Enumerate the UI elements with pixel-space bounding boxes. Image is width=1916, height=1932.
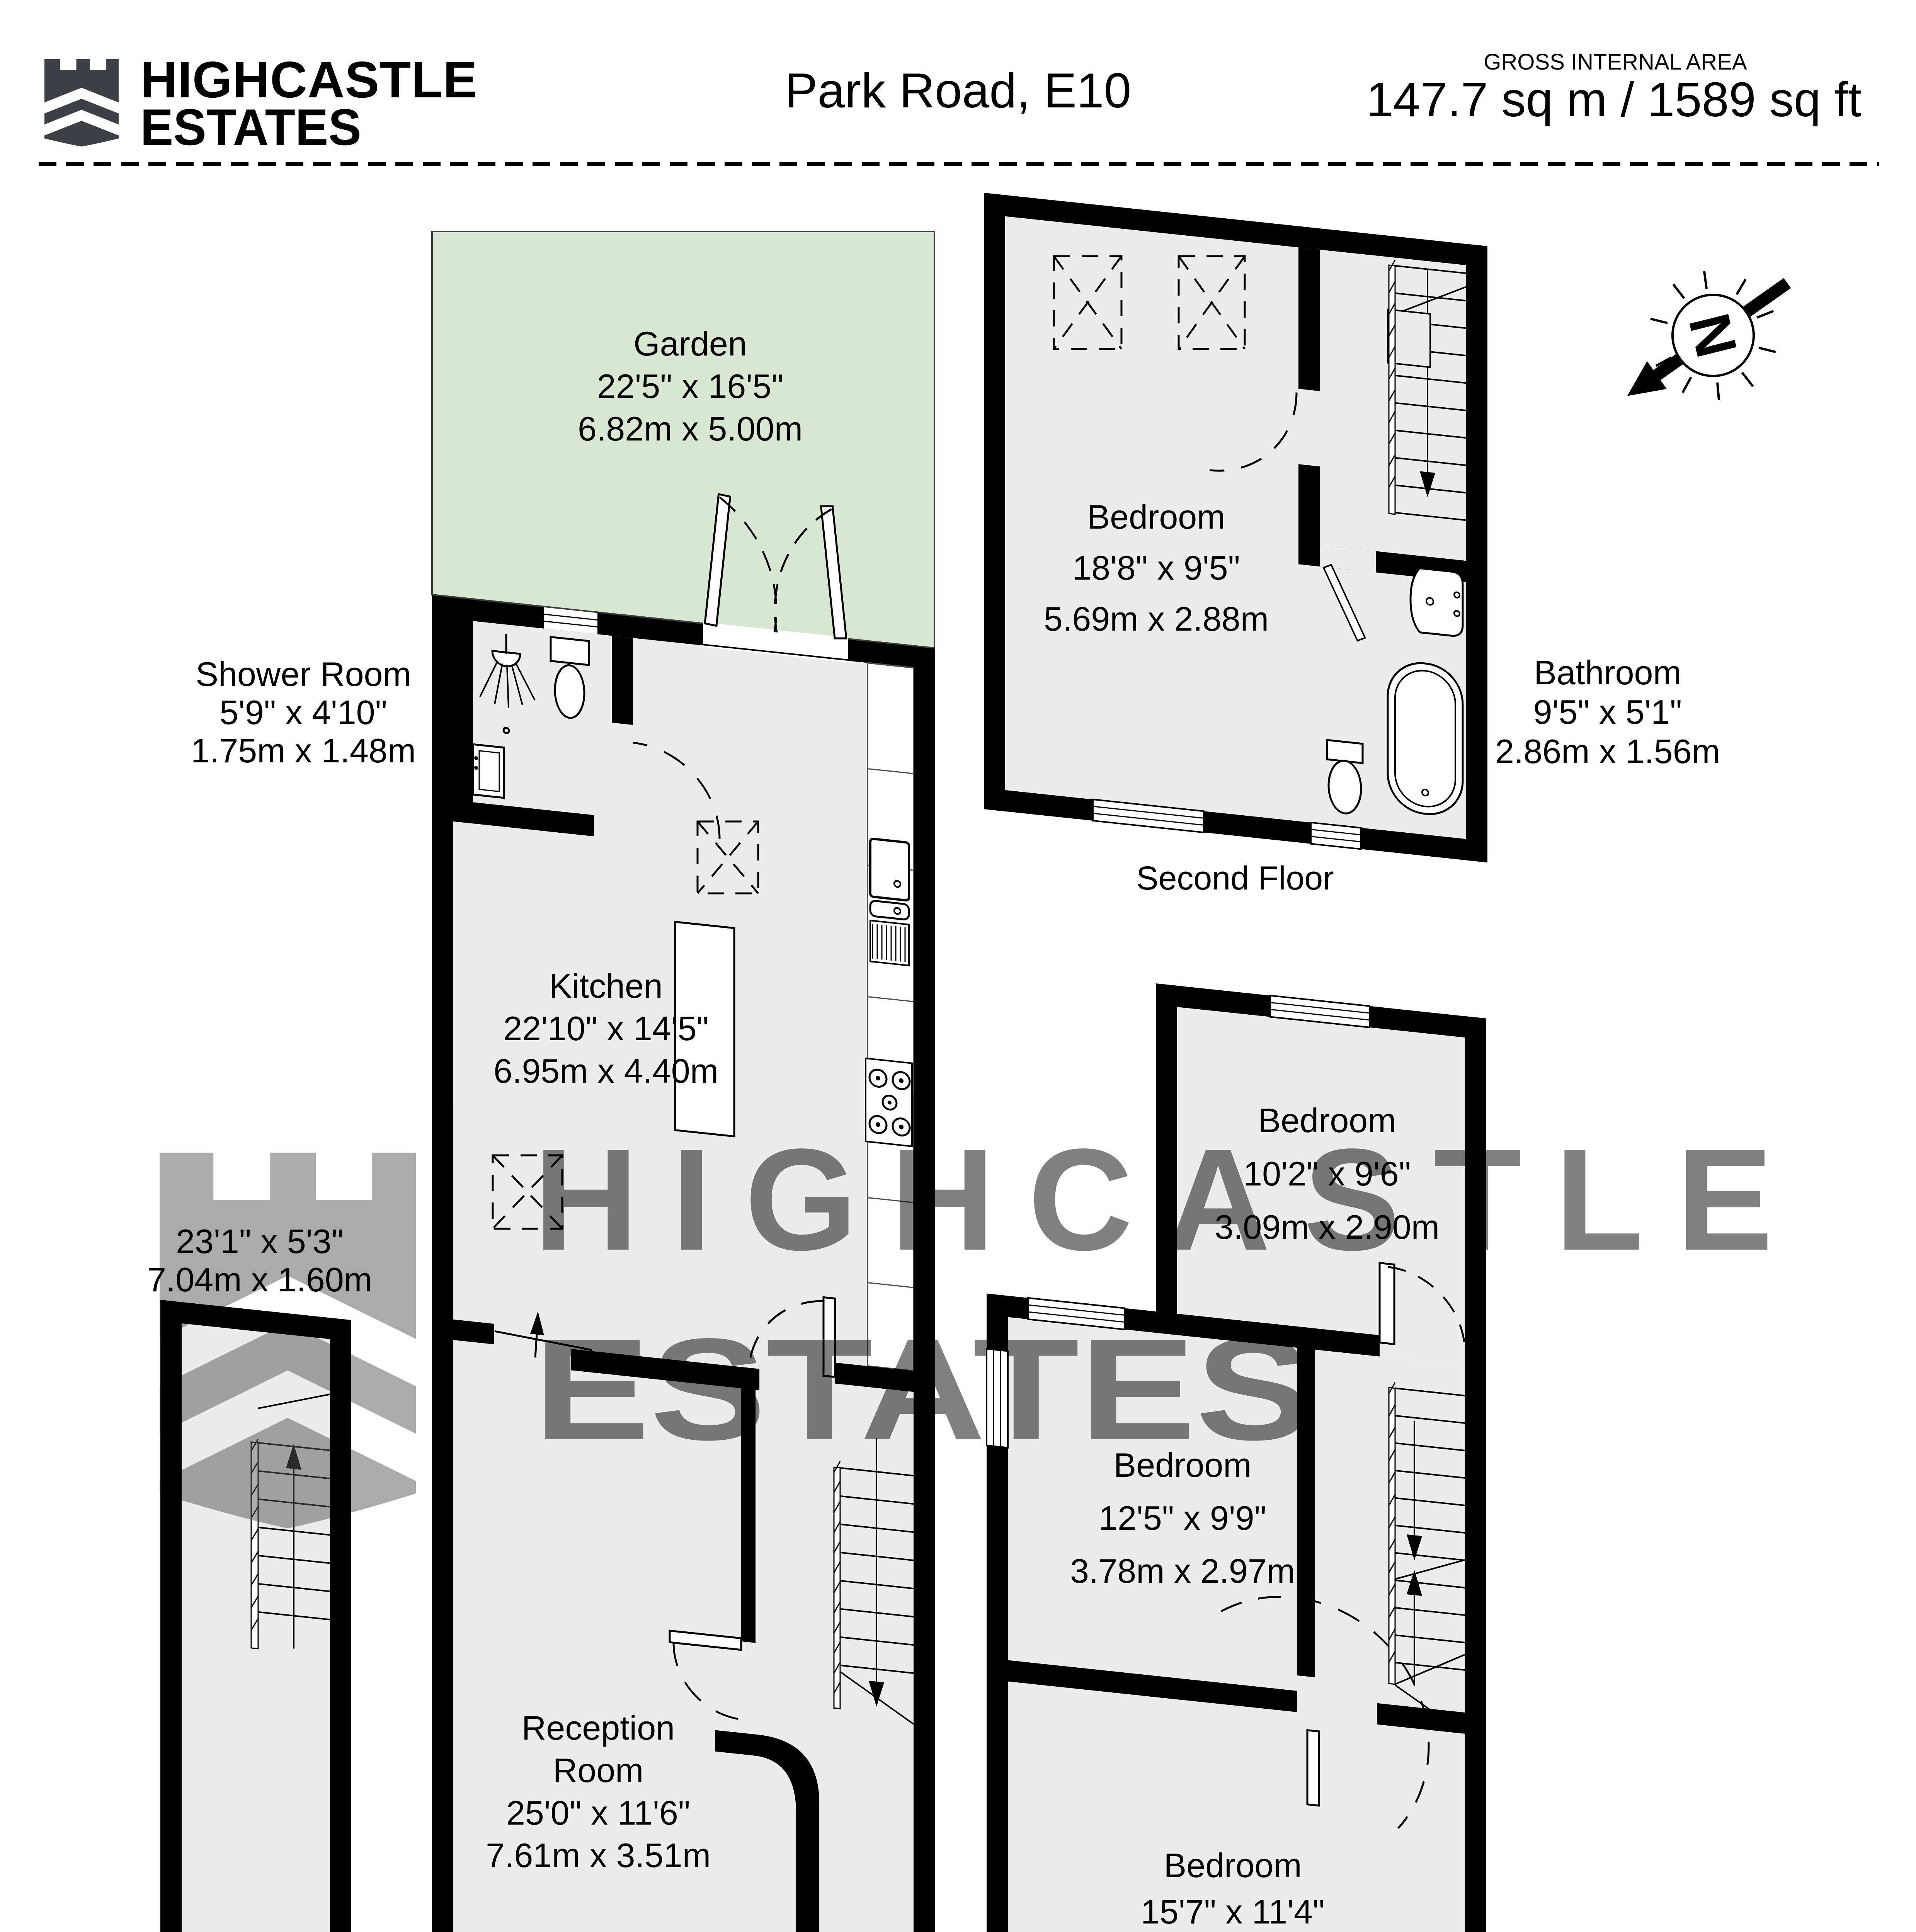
svg-text:Bedroom: Bedroom [1164, 1846, 1302, 1884]
svg-text:5.69m x 2.88m: 5.69m x 2.88m [1044, 600, 1269, 638]
svg-text:6.82m x 5.00m: 6.82m x 5.00m [578, 410, 803, 448]
svg-text:18'8" x 9'5": 18'8" x 9'5" [1072, 549, 1240, 587]
svg-text:12'5" x 9'9": 12'5" x 9'9" [1099, 1499, 1266, 1537]
svg-text:1.75m x 1.48m: 1.75m x 1.48m [191, 731, 416, 770]
svg-text:Bathroom: Bathroom [1534, 653, 1681, 692]
svg-text:23'1" x 5'3": 23'1" x 5'3" [176, 1222, 344, 1260]
svg-text:ESTATES: ESTATES [140, 99, 361, 156]
svg-text:Garden: Garden [633, 325, 747, 363]
svg-text:147.7 sq m / 1589 sq ft: 147.7 sq m / 1589 sq ft [1366, 72, 1862, 127]
svg-text:3.78m x 2.97m: 3.78m x 2.97m [1070, 1552, 1295, 1590]
svg-text:Room: Room [553, 1751, 644, 1789]
svg-text:3.09m x 2.90m: 3.09m x 2.90m [1215, 1208, 1440, 1246]
svg-text:5'9" x 4'10": 5'9" x 4'10" [220, 693, 387, 731]
svg-text:10'2" x 9'6": 10'2" x 9'6" [1243, 1155, 1411, 1193]
svg-text:7.04m x 1.60m: 7.04m x 1.60m [147, 1260, 372, 1299]
svg-text:Bedroom: Bedroom [1113, 1446, 1251, 1484]
svg-text:22'10" x 14'5": 22'10" x 14'5" [503, 1009, 709, 1048]
svg-text:15'7" x 11'4": 15'7" x 11'4" [1141, 1893, 1325, 1931]
svg-text:2.86m x 1.56m: 2.86m x 1.56m [1495, 732, 1720, 770]
svg-text:6.95m x 4.40m: 6.95m x 4.40m [493, 1052, 718, 1090]
svg-text:Park Road, E10: Park Road, E10 [785, 63, 1132, 118]
svg-text:Kitchen: Kitchen [549, 967, 663, 1005]
svg-text:22'5" x 16'5": 22'5" x 16'5" [597, 367, 784, 405]
svg-text:GROSS INTERNAL AREA: GROSS INTERNAL AREA [1484, 49, 1747, 75]
svg-text:Shower Room: Shower Room [196, 655, 411, 693]
svg-text:Reception: Reception [522, 1709, 675, 1747]
svg-text:9'5" x 5'1": 9'5" x 5'1" [1533, 693, 1682, 731]
svg-text:25'0" x 11'6": 25'0" x 11'6" [506, 1794, 690, 1832]
svg-text:Bedroom: Bedroom [1258, 1101, 1396, 1139]
svg-text:Second Floor: Second Floor [1136, 860, 1334, 897]
svg-text:7.61m x 3.51m: 7.61m x 3.51m [486, 1836, 711, 1874]
svg-text:Bedroom: Bedroom [1087, 498, 1225, 536]
